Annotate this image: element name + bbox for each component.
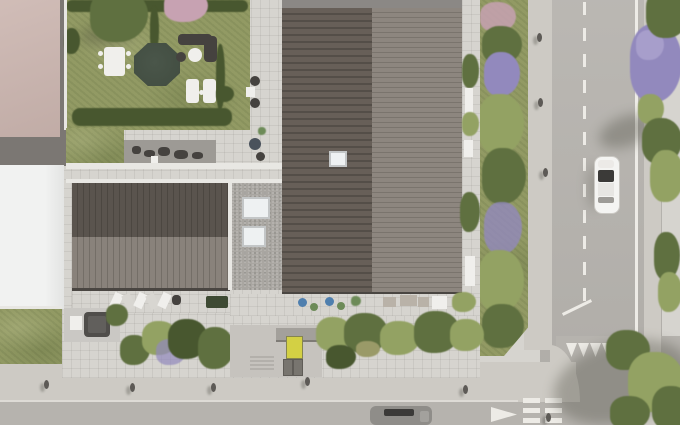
entry-step — [250, 368, 274, 370]
bistro-chair — [256, 152, 265, 161]
ground-garden-west — [120, 313, 234, 375]
entry-court — [230, 323, 322, 379]
gray-car — [370, 404, 432, 425]
balcony-plant — [462, 54, 479, 88]
terrace-chair-blue — [325, 297, 334, 306]
patio-chair — [192, 152, 203, 159]
lounge-sofa — [204, 36, 217, 62]
patio-table — [158, 147, 170, 156]
patio-chair — [132, 146, 141, 154]
center-dashed-line — [583, 2, 586, 308]
balcony-bench — [465, 256, 475, 286]
shrub — [482, 304, 524, 348]
patio-table-small — [151, 156, 158, 163]
dining-table — [104, 47, 125, 76]
flowering-bush-purple — [484, 52, 520, 96]
entry-step — [250, 364, 274, 366]
dining-chair — [98, 64, 103, 69]
pedestrian — [543, 168, 548, 177]
rooftop-garden — [64, 0, 250, 130]
street-green-strip — [478, 0, 528, 356]
east-balcony — [462, 0, 480, 294]
garden-pond — [134, 43, 180, 86]
terrace-chair-green — [337, 302, 345, 310]
carport — [62, 306, 122, 344]
terrace-lounger — [145, 293, 159, 310]
car-trunk — [420, 411, 429, 422]
side-table — [199, 90, 204, 95]
crossing-bar — [523, 418, 540, 423]
car-roof — [598, 183, 614, 196]
alley-path-horizontal — [0, 137, 72, 165]
hedge-south-garden — [72, 108, 232, 126]
pedestrian — [305, 377, 310, 386]
terrace-chair — [172, 295, 181, 305]
garden-grass-wedge — [66, 128, 124, 166]
carport-storage-box — [70, 316, 82, 330]
shrub — [198, 327, 234, 369]
car-roof — [88, 316, 106, 333]
entry-step — [250, 356, 274, 358]
aerial-site-rendering — [0, 0, 680, 425]
main-roof-parapet — [282, 0, 480, 8]
shrub — [482, 148, 526, 204]
walkway-white-path — [66, 163, 290, 169]
terrace-chair-green — [310, 303, 318, 311]
sun-lounger — [203, 79, 216, 103]
white-car — [590, 156, 620, 216]
neighbor-roof-south — [0, 165, 64, 309]
gravel-roof-section — [232, 183, 286, 290]
west-wing-roof-lower — [72, 237, 230, 290]
pedestrian — [538, 98, 543, 107]
main-roof-west-section — [282, 8, 372, 294]
patio-sofa — [174, 150, 188, 159]
utility-box — [283, 359, 293, 376]
terrace-plant — [452, 292, 476, 312]
terrace-plant — [351, 296, 361, 306]
garden-parapet-west — [64, 0, 67, 130]
crossing-bar — [523, 398, 540, 403]
bistro-chair — [250, 98, 260, 108]
car-bonnet — [598, 160, 614, 168]
crossing-bar — [523, 408, 540, 413]
tree-canopy — [658, 272, 680, 312]
tree-canopy — [650, 150, 680, 202]
lounge-chair — [176, 52, 186, 62]
shrub — [326, 345, 356, 369]
entrance-door-yellow — [286, 336, 303, 359]
terrace-table — [418, 297, 429, 307]
shrub — [450, 319, 484, 351]
dining-chair — [126, 64, 131, 69]
lawn-southwest — [0, 309, 62, 364]
entry-step — [250, 360, 274, 362]
sun-lounger — [186, 79, 199, 103]
curb-line — [0, 400, 518, 402]
tree-canopy — [646, 0, 680, 38]
neighbor-roof-north — [0, 0, 60, 137]
tree-canopy-large — [610, 396, 650, 425]
bistro-table — [246, 87, 255, 97]
terrace-lounger — [157, 292, 171, 309]
dining-chair — [126, 51, 131, 56]
car-rear-glass — [598, 197, 614, 203]
pedestrian — [463, 385, 468, 394]
pink-flowering-tree — [164, 0, 208, 22]
pedestrian — [44, 380, 49, 389]
pedestrian — [537, 33, 542, 42]
sidewalk-street-west — [524, 0, 552, 350]
pedestrian — [546, 413, 551, 422]
balcony-plant — [460, 192, 480, 232]
terrace-lounger — [133, 292, 147, 309]
terrace-lounger — [432, 296, 447, 309]
shrub — [216, 86, 234, 102]
balcony-plant — [462, 112, 479, 136]
terrace-table — [383, 297, 396, 307]
skylight — [242, 197, 270, 219]
car-windshield — [598, 170, 614, 182]
shrub — [478, 94, 524, 154]
terrace-planter — [206, 296, 228, 308]
car-glass — [384, 409, 414, 416]
terrace-table — [400, 295, 417, 306]
lounge-table-round — [188, 48, 202, 62]
hedge-band-south — [316, 311, 482, 375]
garden-tree-canopy — [90, 0, 148, 42]
flowering-bush-purple — [484, 202, 522, 254]
main-roof-skylight — [329, 151, 347, 167]
bistro-chair — [250, 76, 260, 86]
car-body — [370, 406, 432, 425]
balcony-planter — [464, 140, 473, 157]
shrub — [478, 250, 524, 312]
main-roof-east-section — [372, 8, 462, 294]
dining-chair — [98, 51, 103, 56]
utility-box — [293, 359, 303, 376]
car-body — [594, 156, 620, 214]
pedestrian — [130, 383, 135, 392]
bistro-table-round — [249, 138, 261, 150]
skylight — [242, 226, 266, 247]
terrace-chair-blue — [298, 298, 307, 307]
west-wing-roof-upper — [72, 183, 230, 237]
pedestrian — [211, 383, 216, 392]
tree-canopy-large — [652, 386, 680, 425]
shrub-dry — [356, 341, 380, 357]
